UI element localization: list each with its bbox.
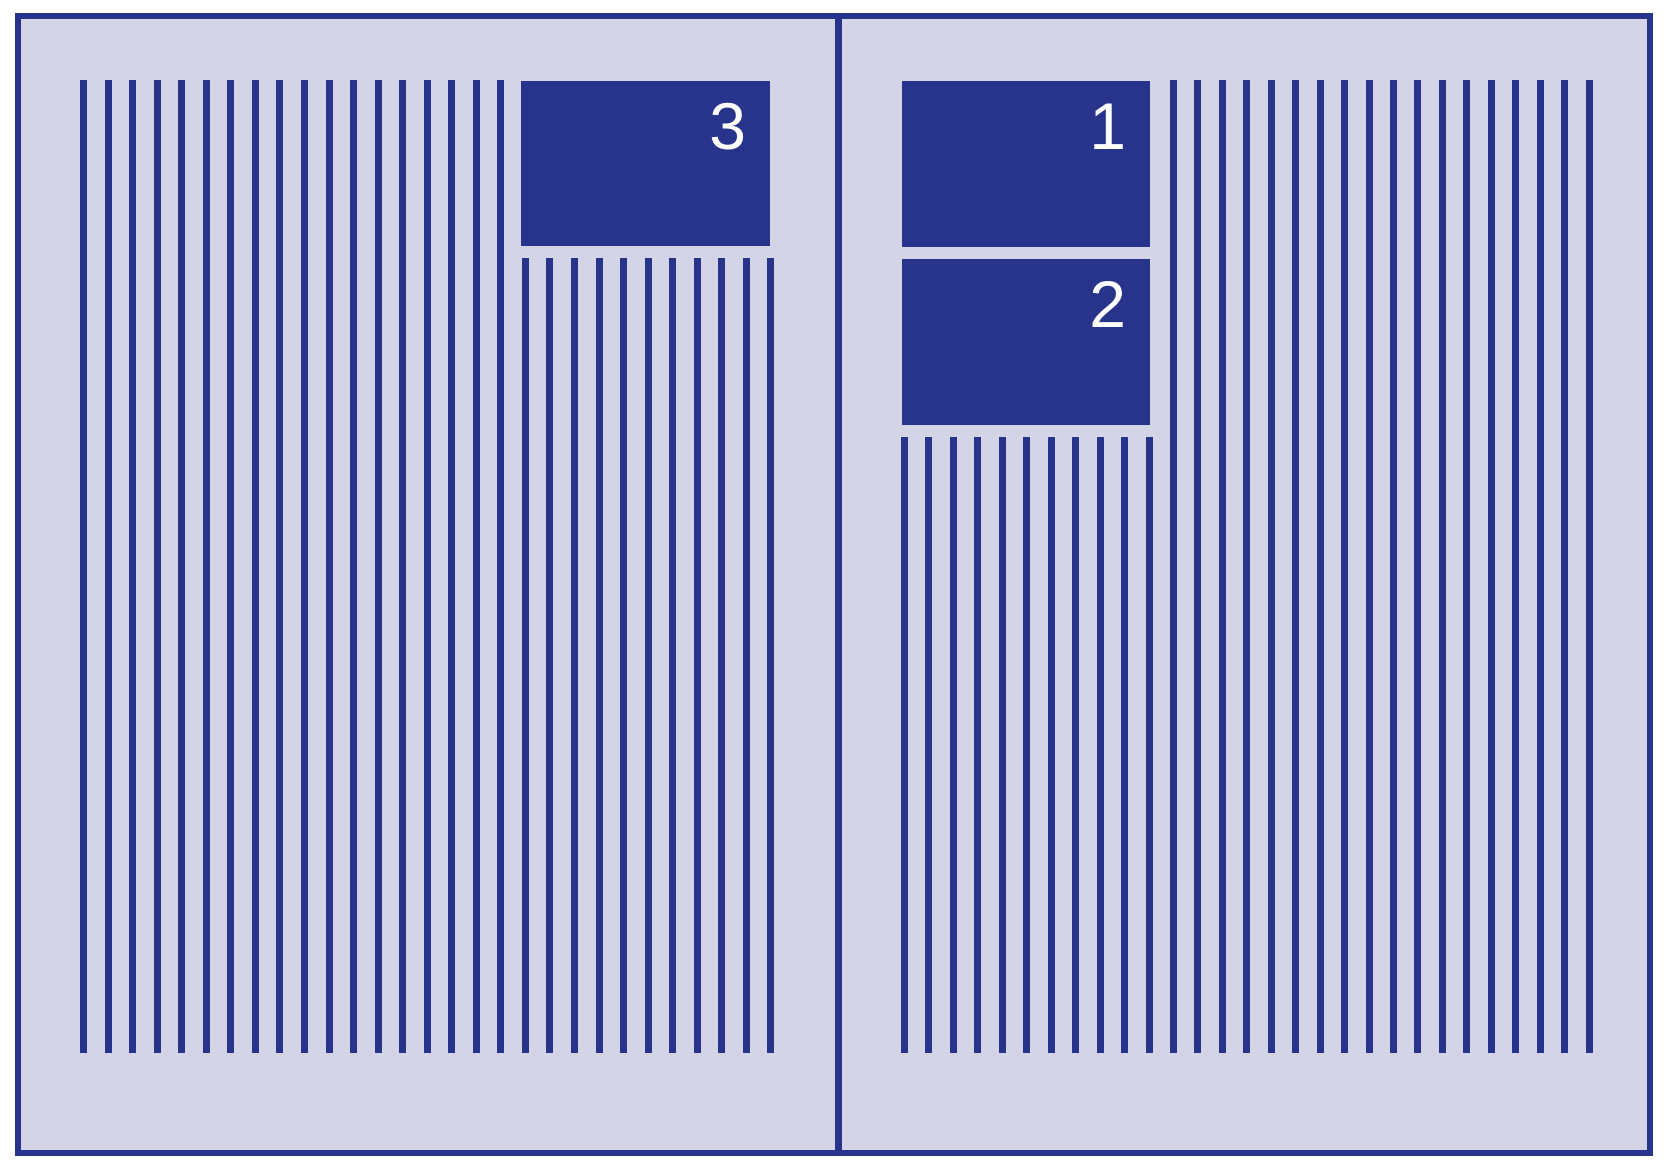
- text-line: [203, 80, 210, 1053]
- text-line: [546, 258, 553, 1053]
- text-line: [301, 80, 308, 1053]
- float-box-2: 2: [902, 259, 1150, 425]
- text-line: [1317, 80, 1324, 1053]
- text-line: [178, 80, 185, 1053]
- text-line: [1414, 80, 1421, 1053]
- text-line: [105, 80, 112, 1053]
- text-line: [1072, 437, 1079, 1053]
- text-line: [80, 80, 87, 1053]
- text-line: [350, 80, 357, 1053]
- text-line: [522, 258, 529, 1053]
- text-line: [1219, 80, 1226, 1053]
- float-box-2-label: 2: [902, 259, 1150, 337]
- text-line: [1341, 80, 1348, 1053]
- text-line: [227, 80, 234, 1053]
- text-line: [424, 80, 431, 1053]
- text-line: [1390, 80, 1397, 1053]
- text-line: [1023, 437, 1030, 1053]
- text-line: [767, 258, 774, 1053]
- text-line: [1512, 80, 1519, 1053]
- page-divider: [835, 13, 842, 1156]
- text-line: [1097, 437, 1104, 1053]
- text-line: [1194, 80, 1201, 1053]
- text-line: [694, 258, 701, 1053]
- text-line: [1243, 80, 1250, 1053]
- text-line: [154, 80, 161, 1053]
- text-line: [1170, 80, 1177, 1053]
- figure-canvas: 3 1 2: [0, 0, 1667, 1170]
- float-box-3-label: 3: [521, 81, 770, 159]
- text-line: [1268, 80, 1275, 1053]
- text-line: [950, 437, 957, 1053]
- text-line: [1121, 437, 1128, 1053]
- text-line: [1586, 80, 1593, 1053]
- text-line: [901, 437, 908, 1053]
- spread-frame: [15, 13, 1653, 1156]
- text-line: [974, 437, 981, 1053]
- text-line: [1537, 80, 1544, 1053]
- text-line: [1488, 80, 1495, 1053]
- text-line: [718, 258, 725, 1053]
- float-box-1-label: 1: [902, 81, 1150, 159]
- text-line: [276, 80, 283, 1053]
- text-line: [1292, 80, 1299, 1053]
- text-line: [448, 80, 455, 1053]
- text-line: [252, 80, 259, 1053]
- text-line: [399, 80, 406, 1053]
- text-line: [129, 80, 136, 1053]
- text-line: [326, 80, 333, 1053]
- text-line: [1439, 80, 1446, 1053]
- text-line: [497, 80, 504, 1053]
- text-line: [620, 258, 627, 1053]
- text-line: [473, 80, 480, 1053]
- text-line: [925, 437, 932, 1053]
- text-line: [1366, 80, 1373, 1053]
- text-line: [1463, 80, 1470, 1053]
- text-line: [669, 258, 676, 1053]
- text-line: [645, 258, 652, 1053]
- text-line: [999, 437, 1006, 1053]
- text-line: [571, 258, 578, 1053]
- text-line: [743, 258, 750, 1053]
- float-box-3: 3: [521, 81, 770, 246]
- text-line: [1048, 437, 1055, 1053]
- text-line: [1146, 437, 1153, 1053]
- text-line: [596, 258, 603, 1053]
- text-line: [375, 80, 382, 1053]
- text-line: [1561, 80, 1568, 1053]
- float-box-1: 1: [902, 81, 1150, 247]
